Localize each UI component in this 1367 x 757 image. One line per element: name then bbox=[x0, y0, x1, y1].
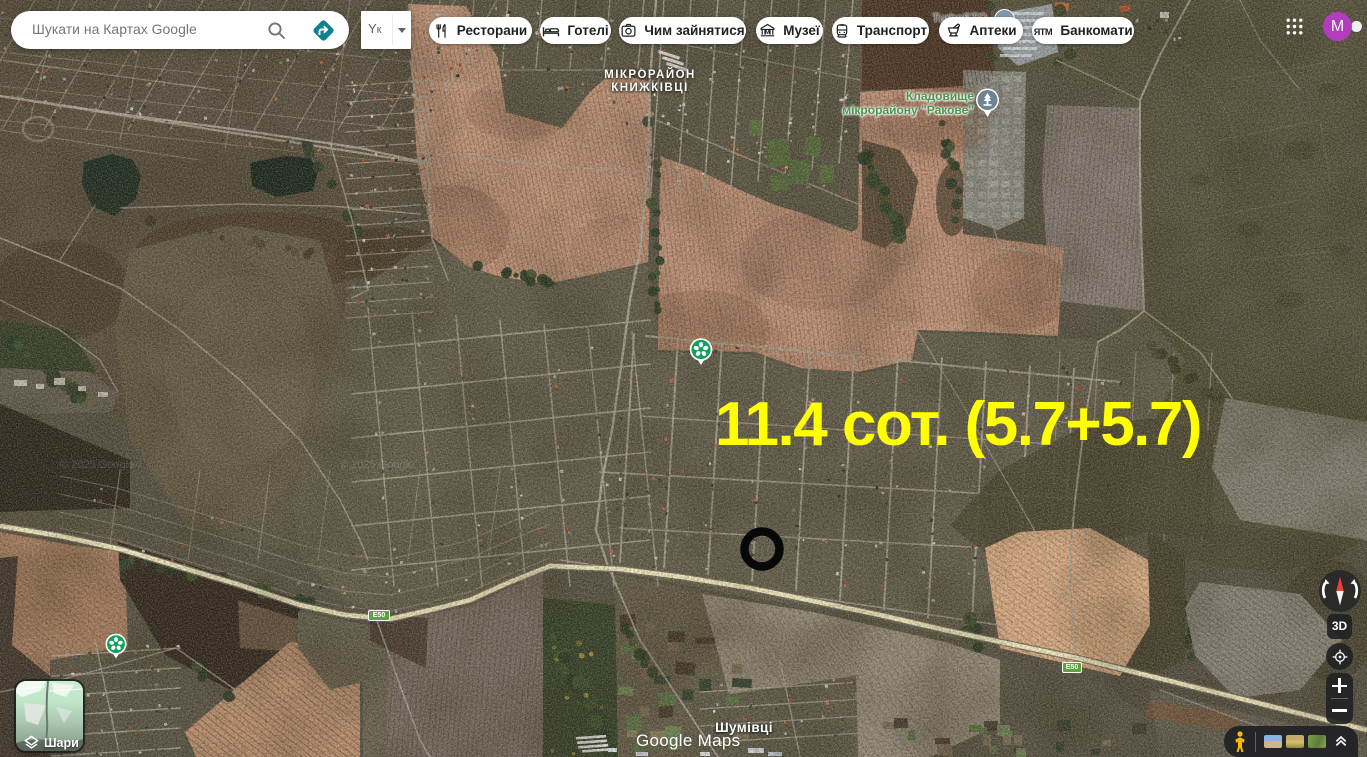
svg-text:© 2025 Google: © 2025 Google bbox=[60, 459, 134, 471]
svg-text:ЯТМ: ЯТМ bbox=[1034, 26, 1053, 36]
svg-text:© 2025 Google: © 2025 Google bbox=[430, 81, 504, 93]
svg-text:© 2025 Google: © 2025 Google bbox=[890, 321, 964, 333]
svg-text:M: M bbox=[765, 30, 770, 36]
svg-text:© 2025 Google: © 2025 Google bbox=[340, 459, 414, 471]
